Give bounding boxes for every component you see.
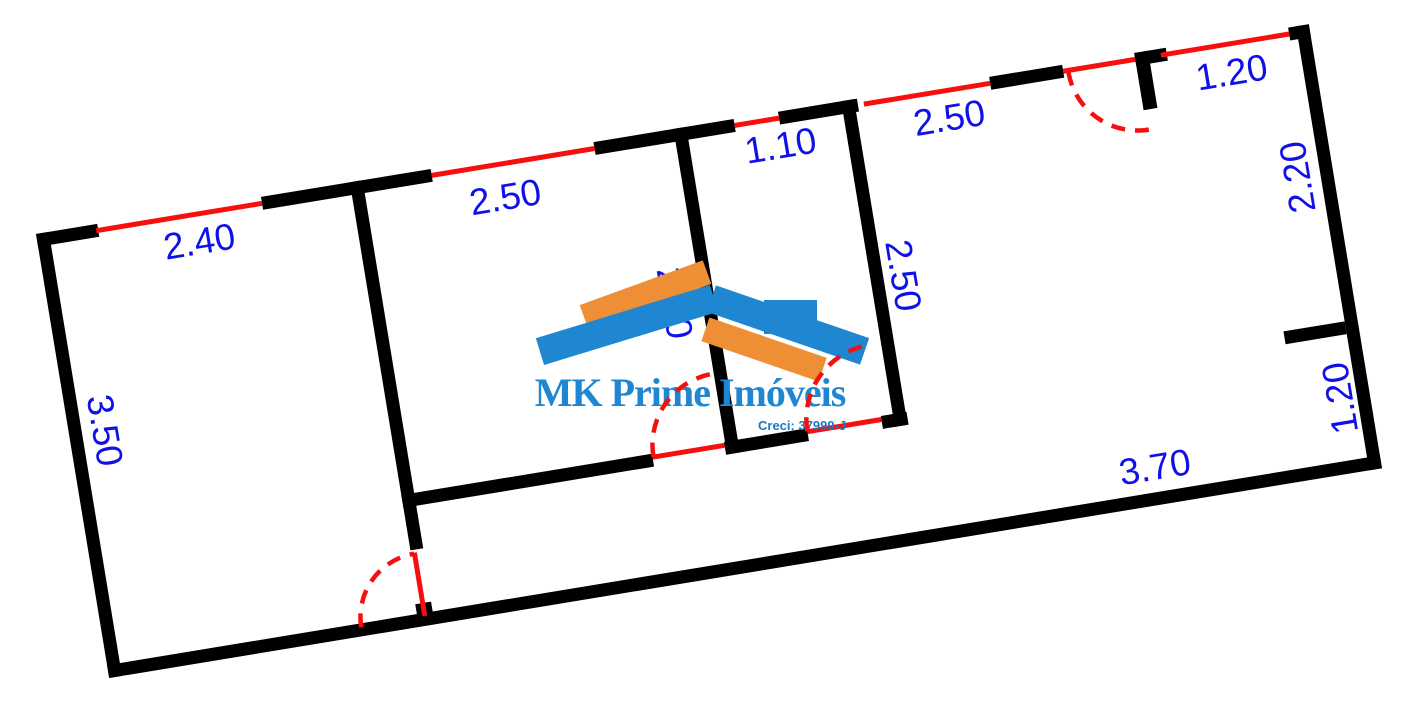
dimension-label: 2.50 [879, 237, 927, 314]
wall-segment [881, 412, 909, 429]
dimension-label: 2.50 [467, 173, 544, 221]
dimension-label: 2.20 [1273, 139, 1321, 216]
watermark-creci: Creci: 37999-J [758, 418, 846, 433]
dimension-label: 2.40 [161, 217, 238, 265]
dimension-label: 3.50 [81, 392, 129, 469]
wall-segment [261, 169, 433, 210]
wall-segment [989, 65, 1064, 90]
watermark-title: MK Prime Imóveis [535, 371, 846, 415]
wall-segment [593, 119, 735, 155]
dimension-label: 1.20 [1193, 48, 1270, 96]
door-leaf [1063, 57, 1136, 74]
chimney-icon [764, 300, 817, 334]
dimension-label: 3.70 [1116, 443, 1193, 491]
door-leaf [652, 443, 725, 460]
window-marker [431, 146, 595, 178]
dimension-label: 1.10 [742, 122, 819, 170]
watermark-logo: MK Prime Imóveis Creci: 37999-J [500, 255, 880, 440]
wall-segment [107, 455, 1382, 678]
dimension-label: 2.50 [911, 94, 988, 142]
wall-segment [401, 454, 654, 508]
wall-segment [1283, 321, 1346, 344]
